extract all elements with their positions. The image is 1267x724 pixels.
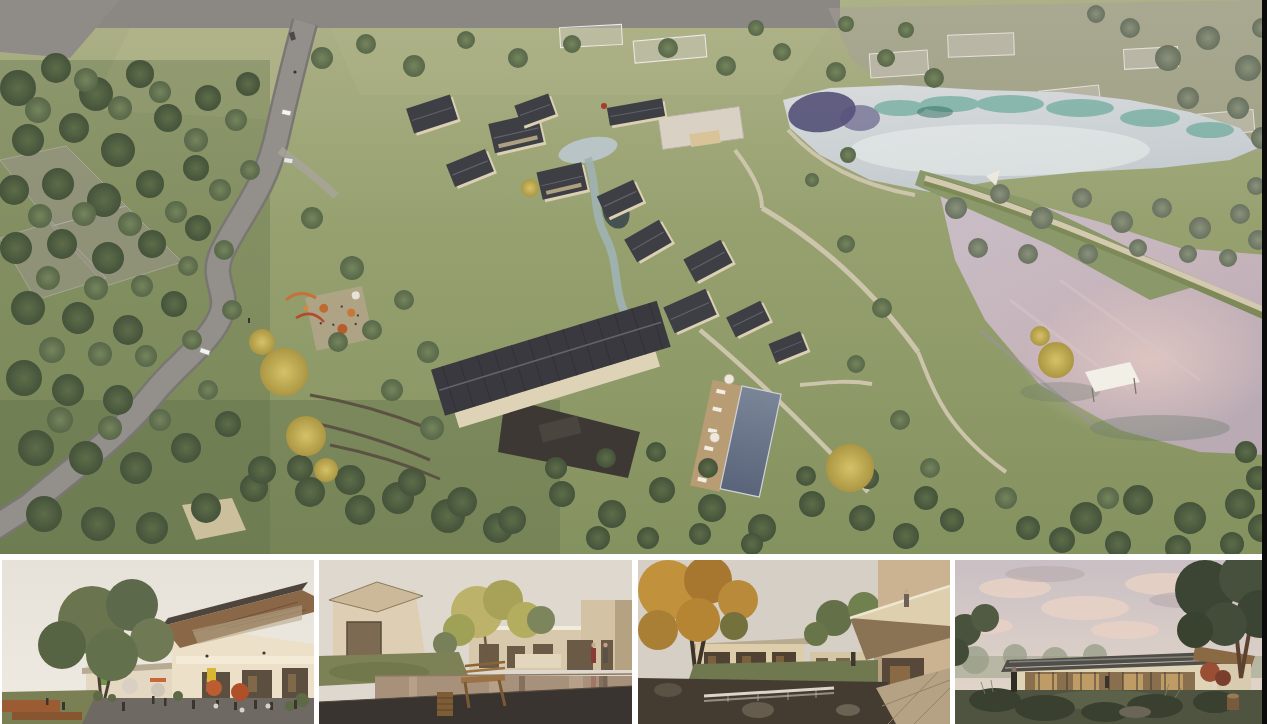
presentation-board	[0, 0, 1267, 724]
aerial-site-rendering	[0, 0, 1267, 554]
carved-stool	[437, 692, 453, 716]
person	[1011, 667, 1017, 693]
red-flower-shrub	[601, 103, 607, 109]
yellow-sign	[207, 668, 216, 682]
thumbnail-plaza-view	[2, 560, 314, 724]
thumbnail-pavilion-dusk-view	[955, 560, 1262, 724]
balcony-person	[904, 594, 909, 607]
pedestrian	[248, 318, 250, 323]
scan-edge-strip	[1262, 0, 1267, 724]
motorbike	[293, 70, 296, 73]
interior-figure	[1105, 676, 1109, 688]
rocks	[1119, 706, 1151, 718]
thumbnail-pond-courtyard-view	[319, 560, 632, 724]
person	[851, 652, 856, 666]
thumbnail-waterfall-courtyard-view	[638, 560, 950, 724]
weir-pond	[638, 678, 898, 724]
